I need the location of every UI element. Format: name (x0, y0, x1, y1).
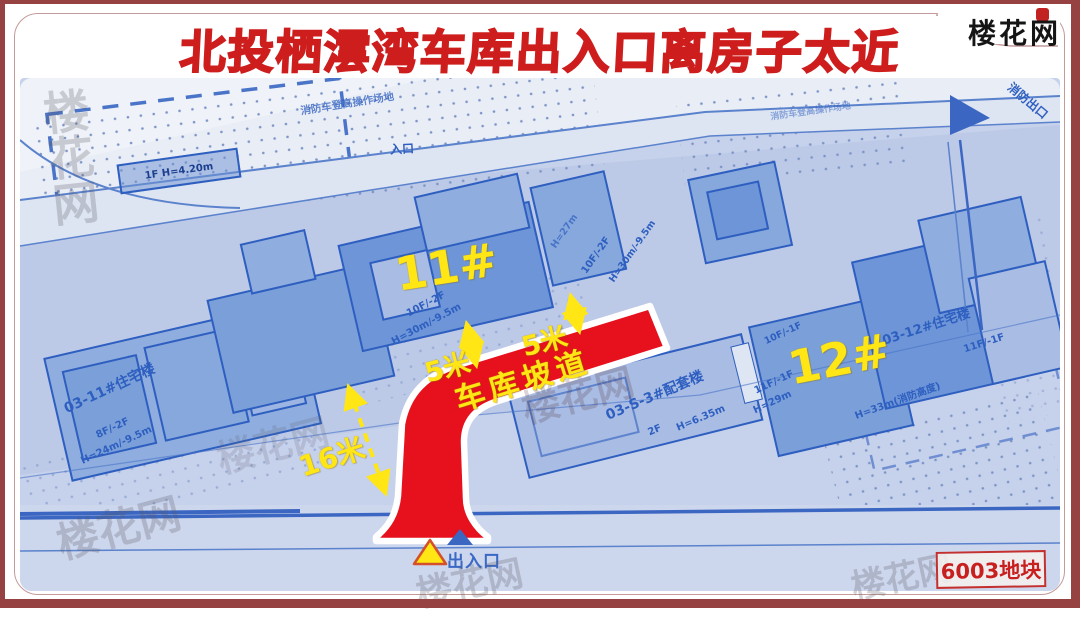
blueprint-graphics (0, 0, 1080, 608)
plan-label: 入口 (390, 139, 415, 157)
entrance-label: 出入口 (447, 547, 501, 572)
page-title: 北投栖澐湾车库出入口离房子太近 (0, 16, 1080, 82)
parcel-badge: 6003地块 (936, 550, 1047, 589)
site-logo: 楼花网 (968, 12, 1061, 52)
